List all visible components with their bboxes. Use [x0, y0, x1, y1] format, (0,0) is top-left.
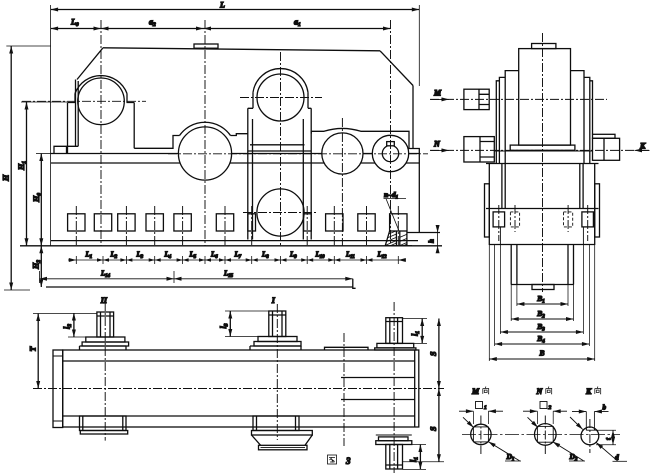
svg-text:B4: B4 [536, 334, 545, 344]
svg-text:II: II [100, 296, 108, 305]
svg-text:l2: l2 [63, 324, 73, 329]
svg-text:L8: L8 [261, 251, 269, 260]
svg-text:M: M [471, 387, 480, 396]
svg-text:B1: B1 [536, 294, 545, 304]
svg-text:H0: H0 [32, 193, 43, 203]
svg-text:H2: H2 [32, 260, 43, 270]
svg-text:I: I [271, 296, 276, 305]
svg-text:H1: H1 [17, 161, 28, 171]
svg-text:B2: B2 [536, 309, 545, 319]
svg-text:L3: L3 [136, 251, 144, 260]
svg-text:D1: D1 [506, 452, 515, 462]
svg-text:L: L [219, 1, 225, 10]
svg-text:L2: L2 [110, 251, 118, 260]
svg-text:L4: L4 [164, 251, 172, 260]
svg-text:B3: B3 [536, 322, 545, 332]
svg-text:L14: L14 [100, 270, 111, 279]
svg-text:L11: L11 [345, 251, 355, 260]
svg-text:a1: a1 [294, 18, 301, 29]
svg-text:K: K [639, 142, 646, 151]
svg-text:D2: D2 [569, 452, 578, 462]
svg-text:N: N [536, 387, 544, 396]
svg-text:a2: a2 [149, 18, 156, 29]
svg-text:L15: L15 [223, 270, 234, 279]
svg-text:L10: L10 [315, 251, 326, 260]
svg-text:S: S [429, 351, 438, 356]
svg-text:t: t [605, 437, 613, 440]
svg-text:L9: L9 [289, 251, 297, 260]
svg-text:h: h [428, 239, 436, 243]
svg-text:H: H [2, 174, 11, 182]
svg-text:M: M [433, 89, 442, 98]
svg-text:3: 3 [345, 456, 351, 466]
svg-text:T: T [29, 346, 38, 352]
svg-text:B: B [538, 349, 544, 358]
svg-text:L1: L1 [85, 251, 93, 260]
svg-text:l3: l3 [219, 323, 229, 328]
svg-text:L12: L12 [377, 251, 388, 260]
svg-text:b: b [603, 404, 607, 412]
svg-text:d: d [615, 452, 619, 461]
svg-text:1: 1 [484, 405, 487, 411]
svg-text:2: 2 [548, 405, 552, 411]
svg-text:l1: l1 [411, 331, 421, 336]
svg-text:L0: L0 [70, 18, 79, 29]
svg-text:N: N [433, 140, 441, 149]
svg-text:K: K [585, 387, 592, 396]
svg-text:S: S [429, 426, 438, 431]
svg-text:l1: l1 [409, 457, 419, 462]
svg-text:L7: L7 [234, 251, 242, 260]
svg-text:L6: L6 [210, 251, 218, 260]
svg-text:L5: L5 [189, 251, 197, 260]
